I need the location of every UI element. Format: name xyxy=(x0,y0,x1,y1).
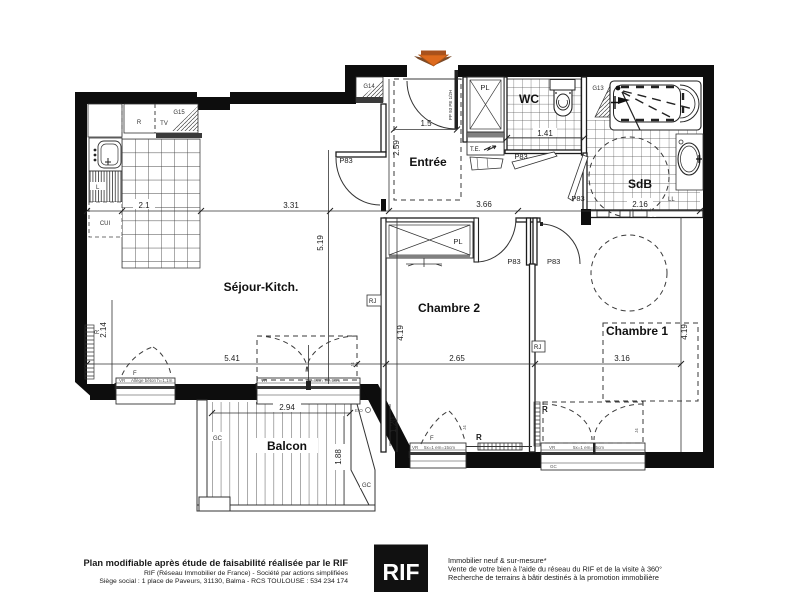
svg-text:5x=1 em=15cm: 5x=1 em=15cm xyxy=(573,445,604,450)
svg-text:1.88: 1.88 xyxy=(334,449,343,465)
svg-text:4.19: 4.19 xyxy=(680,324,689,340)
svg-text:J4: J4 xyxy=(462,425,467,430)
svg-text:GC: GC xyxy=(550,464,558,469)
svg-text:2.16: 2.16 xyxy=(632,200,648,209)
svg-text:5.41: 5.41 xyxy=(224,354,240,363)
svg-text:J4: J4 xyxy=(634,428,639,433)
svg-text:VR: VR xyxy=(549,445,556,450)
svg-text:2.1: 2.1 xyxy=(138,201,150,210)
svg-text:5x=1 em=15cm: 5x=1 em=15cm xyxy=(424,445,455,450)
svg-text:PL: PL xyxy=(453,237,462,246)
svg-text:P83: P83 xyxy=(507,257,520,266)
svg-text:RIF: RIF xyxy=(383,559,420,585)
svg-text:F: F xyxy=(133,371,137,377)
svg-text:5.19: 5.19 xyxy=(316,235,325,251)
svg-text:PL: PL xyxy=(480,83,489,92)
svg-text:PP 93 PE 1/2H: PP 93 PE 1/2H xyxy=(448,90,453,120)
svg-text:Entrée: Entrée xyxy=(409,155,447,169)
svg-text:1.5: 1.5 xyxy=(420,119,432,128)
svg-text:VR: VR xyxy=(412,445,419,450)
svg-text:RJ: RJ xyxy=(369,299,376,305)
svg-text:P83: P83 xyxy=(547,257,560,266)
svg-text:E.O: E.O xyxy=(355,408,363,413)
svg-text:2.59: 2.59 xyxy=(392,140,401,156)
svg-text:Allège béton h=1,1m: Allège béton h=1,1m xyxy=(131,378,173,383)
svg-text:4.19: 4.19 xyxy=(396,325,405,341)
svg-text:3.16: 3.16 xyxy=(614,354,630,363)
svg-text:P83: P83 xyxy=(514,152,527,161)
svg-text:2.65: 2.65 xyxy=(449,354,465,363)
svg-text:SS: SS xyxy=(649,213,657,219)
svg-text:Siège social : 1 place de Pave: Siège social : 1 place de Paveurs, 31130… xyxy=(99,578,348,585)
svg-text:RIF (Réseau Immobilier de Fran: RIF (Réseau Immobilier de France) - Soci… xyxy=(144,570,349,577)
svg-text:R: R xyxy=(137,120,142,126)
svg-text:SdB: SdB xyxy=(628,177,652,191)
svg-text:F: F xyxy=(430,436,434,442)
svg-text:Chambre 2: Chambre 2 xyxy=(418,301,480,315)
svg-text:R: R xyxy=(476,433,482,442)
svg-text:2.94: 2.94 xyxy=(279,403,295,412)
svg-text:P83: P83 xyxy=(571,194,584,203)
svg-text:WC: WC xyxy=(519,92,539,106)
svg-text:1.41: 1.41 xyxy=(537,129,553,138)
svg-text:Plan modifiable après étude de: Plan modifiable après étude de faisabili… xyxy=(83,558,348,568)
svg-text:RJ: RJ xyxy=(534,345,541,351)
svg-text:3.66: 3.66 xyxy=(476,200,492,209)
svg-text:VR: VR xyxy=(119,378,126,383)
svg-text:CUI: CUI xyxy=(100,221,111,227)
svg-text:2.14: 2.14 xyxy=(99,322,108,338)
svg-text:GC: GC xyxy=(213,436,223,442)
svg-text:LL: LL xyxy=(668,197,675,203)
svg-text:1.20: 1.20 xyxy=(389,417,398,433)
svg-text:G13: G13 xyxy=(592,86,604,92)
svg-text:GC: GC xyxy=(362,483,372,489)
svg-text:T.E.: T.E. xyxy=(470,147,481,153)
svg-text:TV: TV xyxy=(160,121,168,127)
svg-text:Recherche de terrains à bâtir: Recherche de terrains à bâtir destinés à… xyxy=(448,573,659,582)
svg-text:Séjour-Kitch.: Séjour-Kitch. xyxy=(224,280,299,294)
svg-text:P83: P83 xyxy=(339,156,352,165)
svg-text:Chambre 1: Chambre 1 xyxy=(606,324,668,338)
svg-text:G15: G15 xyxy=(173,110,185,116)
svg-text:3.31: 3.31 xyxy=(283,201,299,210)
svg-text:Balcon: Balcon xyxy=(267,439,307,453)
svg-text:G14: G14 xyxy=(363,84,375,90)
